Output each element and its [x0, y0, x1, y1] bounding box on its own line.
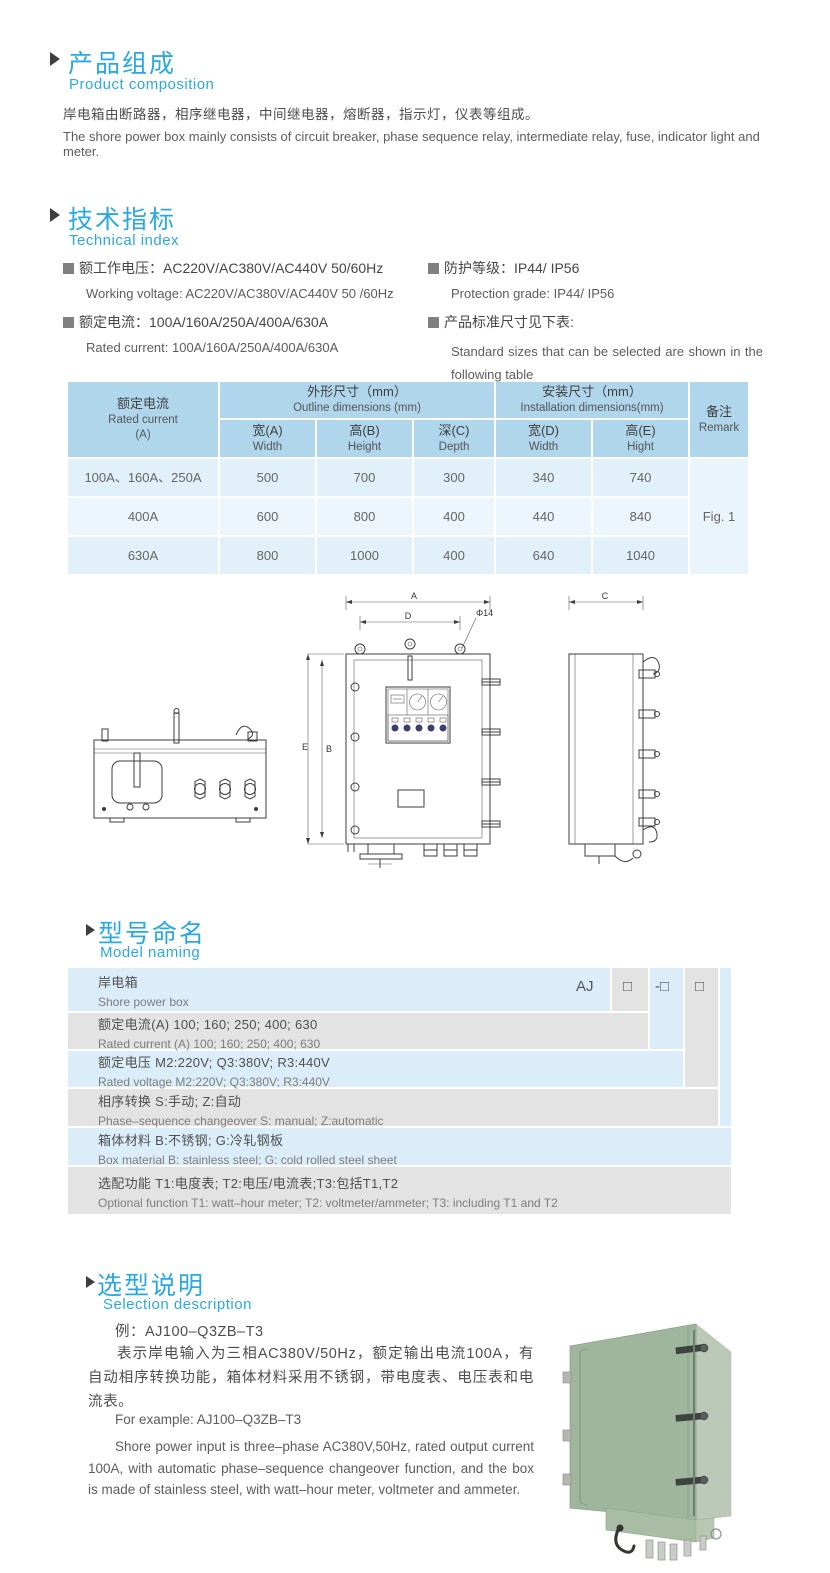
table-cell: 800: [220, 537, 315, 574]
spec-standard-sizes-zh: 产品标准尺寸见下表:: [428, 312, 574, 332]
code-prefix: AJ: [576, 978, 594, 995]
table-header-outline: 外形尺寸（mm） Outline dimensions (mm): [220, 382, 494, 418]
dim-label-c: C: [602, 592, 609, 601]
table-cell: 440: [496, 498, 591, 535]
selection-example-en: For example: AJ100–Q3ZB–T3: [115, 1412, 301, 1427]
model-naming-table: 岸电箱 Shore power box 额定电流(A) 100; 160; 25…: [68, 968, 731, 1214]
code-box-3: □: [695, 978, 704, 995]
table-cell: 400: [414, 537, 494, 574]
naming-row-phase-changeover: 相序转换 S:手动; Z:自动 Phase–sequence changeove…: [68, 1089, 718, 1126]
table-cell: 640: [496, 537, 591, 574]
dim-label-a: A: [411, 592, 417, 601]
square-bullet-icon: [428, 317, 439, 328]
table-header-installation: 安装尺寸（mm） Installation dimensions(mm): [496, 382, 688, 418]
technical-index-title-en: Technical index: [69, 232, 179, 249]
spec-rated-current-zh: 额定电流：100A/160A/250A/400A/630A: [63, 312, 328, 332]
drawing-front-view: A D Φ14 E B: [298, 592, 513, 872]
table-subheader-height-b: 高(B)Height: [317, 420, 412, 457]
table-row-current: 400A: [68, 498, 218, 535]
product-composition-title-en: Product composition: [69, 76, 214, 93]
table-cell: 400: [414, 498, 494, 535]
table-subheader-height-e: 高(E)Hight: [593, 420, 688, 457]
table-cell: 600: [220, 498, 315, 535]
table-cell: 300: [414, 459, 494, 496]
dim-label-b: B: [326, 744, 332, 754]
table-cell: 1000: [317, 537, 412, 574]
table-cell: 700: [317, 459, 412, 496]
naming-row-shore-power-box: 岸电箱 Shore power box: [68, 968, 610, 1011]
product-composition-title-zh: 产品组成: [68, 44, 176, 80]
table-subheader-depth-c: 深(C)Depth: [414, 420, 494, 457]
selection-title-en: Selection description: [103, 1296, 252, 1313]
model-naming-title-en: Model naming: [100, 944, 200, 961]
product-photo: [548, 1290, 830, 1573]
hole-label: Φ14: [476, 608, 493, 618]
table-subheader-width-d: 宽(D)Width: [496, 420, 591, 457]
naming-row-rated-current: 额定电流(A) 100; 160; 250; 400; 630 Rated cu…: [68, 1013, 648, 1049]
table-remark-fig: Fig. 1: [690, 459, 748, 574]
naming-row-rated-voltage: 额定电压 M2:220V; Q3:380V; R3:440V Rated vol…: [68, 1051, 683, 1087]
square-bullet-icon: [63, 317, 74, 328]
square-bullet-icon: [428, 263, 439, 274]
dimension-table: 额定电流 Rated current (A) 外形尺寸（mm） Outline …: [68, 382, 748, 574]
naming-row-box-material: 箱体材料 B:不锈钢; G:冷轧钢板 Box material B: stain…: [68, 1128, 731, 1165]
table-cell: 340: [496, 459, 591, 496]
selection-body-en: Shore power input is three–phase AC380V,…: [88, 1436, 534, 1501]
table-row-current: 630A: [68, 537, 218, 574]
spec-rated-current-en: Rated current: 100A/160A/250A/400A/630A: [86, 340, 338, 355]
dim-label-e: E: [302, 742, 308, 752]
drawing-bottom-view: [88, 705, 273, 845]
section-arrow-icon: [86, 924, 95, 936]
spec-working-voltage-en: Working voltage: AC220V/AC380V/AC440V 50…: [86, 286, 394, 301]
naming-row-optional-function: 选配功能 T1:电度表; T2:电压/电流表;T3:包括T1,T2 Option…: [68, 1167, 731, 1214]
table-row-current: 100A、160A、250A: [68, 459, 218, 496]
table-cell: 1040: [593, 537, 688, 574]
product-composition-body-en: The shore power box mainly consists of c…: [63, 129, 783, 159]
selection-example-zh: 例：AJ100–Q3ZB–T3: [115, 1320, 264, 1341]
dim-label-d: D: [405, 611, 412, 621]
technical-index-title-zh: 技术指标: [68, 200, 176, 236]
spec-working-voltage-zh: 额工作电压：AC220V/AC380V/AC440V 50/60Hz: [63, 258, 383, 278]
table-header-rated-current: 额定电流 Rated current (A): [68, 382, 218, 457]
table-cell: 800: [317, 498, 412, 535]
table-cell: 840: [593, 498, 688, 535]
naming-code-column-material: [720, 968, 731, 1126]
table-cell: 740: [593, 459, 688, 496]
spec-protection-grade-en: Protection grade: IP44/ IP56: [451, 286, 614, 301]
section-arrow-icon: [50, 52, 60, 66]
section-arrow-icon: [50, 208, 60, 222]
code-box-1: □: [623, 978, 632, 995]
table-header-remark: 备注 Remark: [690, 382, 748, 457]
spec-protection-grade-zh: 防护等级：IP44/ IP56: [428, 258, 579, 278]
selection-body-zh: 表示岸电输入为三相AC380V/50Hz，额定输出电流100A，有自动相序转换功…: [88, 1342, 534, 1414]
section-arrow-icon: [86, 1276, 95, 1288]
catalog-page: { "colors": { "accent_blue": "#2aa9e0", …: [0, 0, 830, 1568]
square-bullet-icon: [63, 263, 74, 274]
spec-standard-sizes-en: Standard sizes that can be selected are …: [451, 340, 763, 386]
table-cell: 500: [220, 459, 315, 496]
drawing-side-view: C: [555, 592, 670, 872]
table-subheader-width-a: 宽(A)Width: [220, 420, 315, 457]
code-box-2: -□: [655, 978, 669, 995]
product-composition-body-zh: 岸电箱由断路器，相序继电器，中间继电器，熔断器，指示灯，仪表等组成。: [63, 103, 783, 123]
